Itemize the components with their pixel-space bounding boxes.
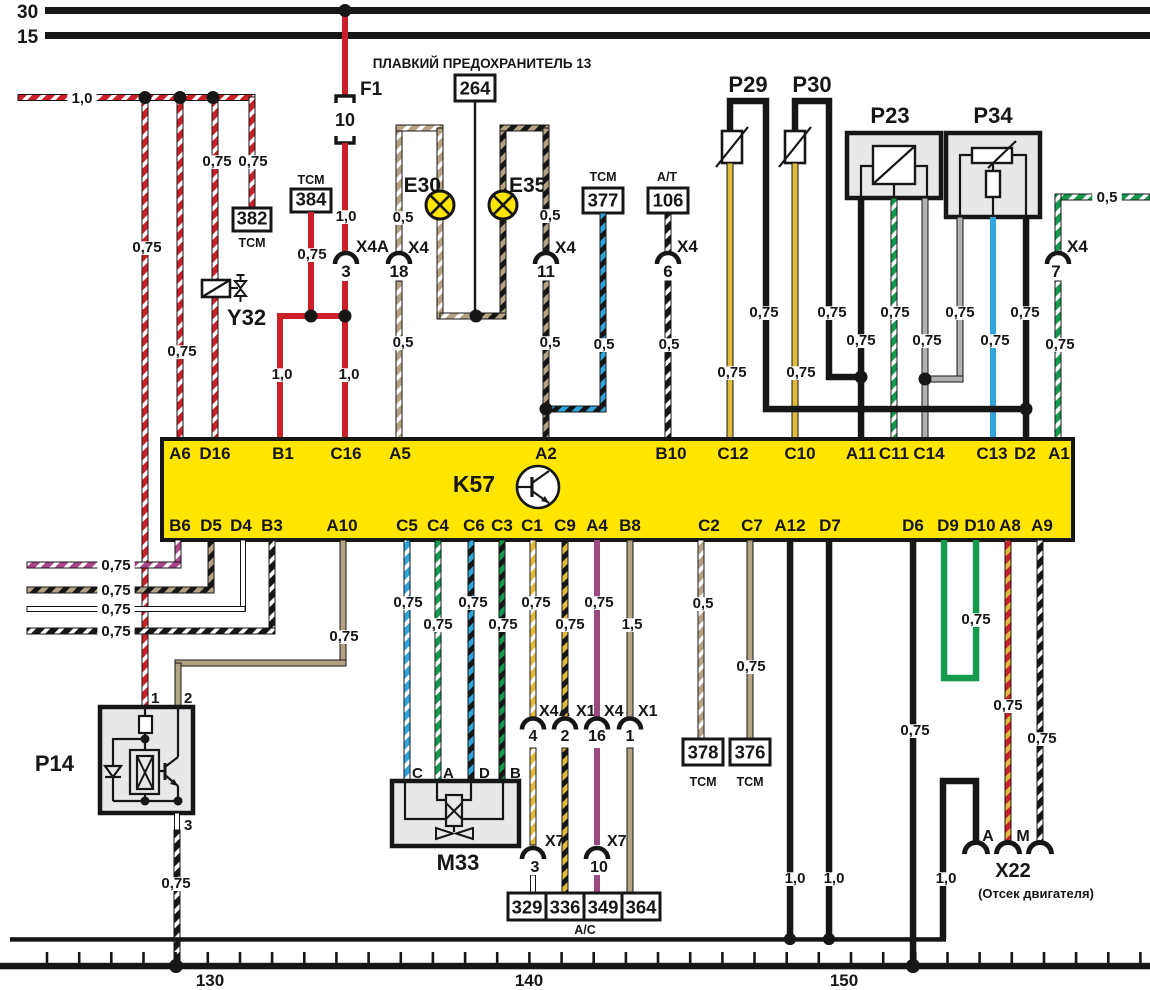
- svg-text:0,75: 0,75: [488, 616, 517, 633]
- svg-text:6: 6: [663, 262, 672, 281]
- svg-text:A6: A6: [169, 444, 191, 463]
- svg-text:3: 3: [531, 859, 540, 876]
- svg-text:A2: A2: [535, 444, 557, 463]
- svg-text:TCM: TCM: [736, 775, 763, 789]
- svg-text:130: 130: [196, 971, 224, 990]
- svg-text:1: 1: [626, 728, 635, 745]
- svg-text:X4: X4: [604, 703, 624, 720]
- svg-text:0,75: 0,75: [945, 304, 974, 321]
- svg-text:0,5: 0,5: [540, 207, 561, 224]
- svg-text:P14: P14: [35, 751, 75, 776]
- svg-text:3: 3: [341, 262, 350, 281]
- svg-text:7: 7: [1051, 262, 1060, 281]
- svg-text:Y32: Y32: [227, 305, 266, 330]
- svg-text:382: 382: [237, 208, 268, 229]
- svg-text:D10: D10: [964, 516, 995, 535]
- svg-text:0,75: 0,75: [846, 332, 875, 349]
- svg-text:D: D: [479, 765, 490, 782]
- svg-text:0,75: 0,75: [458, 594, 487, 611]
- svg-text:A: A: [443, 765, 454, 782]
- svg-text:A4: A4: [586, 516, 608, 535]
- svg-text:0,5: 0,5: [1097, 189, 1118, 206]
- svg-text:M33: M33: [437, 850, 480, 875]
- svg-text:C: C: [412, 765, 423, 782]
- svg-text:0,75: 0,75: [1045, 336, 1074, 353]
- svg-text:0,5: 0,5: [393, 334, 414, 351]
- svg-text:K57: K57: [453, 471, 495, 497]
- svg-text:0,75: 0,75: [749, 304, 778, 321]
- svg-text:TCM: TCM: [297, 173, 324, 187]
- svg-text:140: 140: [515, 971, 543, 990]
- svg-text:F1: F1: [360, 79, 383, 100]
- svg-text:0,75: 0,75: [736, 658, 765, 675]
- svg-text:A/C: A/C: [574, 923, 596, 937]
- svg-text:B1: B1: [272, 444, 294, 463]
- svg-text:0,75: 0,75: [584, 594, 613, 611]
- svg-text:10: 10: [590, 859, 608, 876]
- svg-text:364: 364: [626, 897, 658, 918]
- svg-text:C2: C2: [698, 516, 720, 535]
- svg-text:X4: X4: [1067, 237, 1088, 256]
- svg-text:B: B: [510, 765, 521, 782]
- svg-text:4: 4: [529, 728, 538, 745]
- svg-text:B6: B6: [169, 516, 191, 535]
- svg-text:A/T: A/T: [657, 170, 678, 184]
- svg-text:C1: C1: [521, 516, 543, 535]
- svg-text:C13: C13: [976, 444, 1007, 463]
- svg-text:329: 329: [512, 897, 543, 918]
- svg-text:16: 16: [588, 728, 606, 745]
- svg-text:(Отсек двигателя): (Отсек двигателя): [978, 886, 1094, 901]
- svg-text:D6: D6: [902, 516, 924, 535]
- svg-text:X4: X4: [677, 237, 698, 256]
- svg-text:0,75: 0,75: [132, 239, 161, 256]
- svg-text:15: 15: [17, 27, 39, 48]
- svg-text:D2: D2: [1014, 444, 1036, 463]
- svg-text:C4: C4: [427, 516, 449, 535]
- svg-text:0,75: 0,75: [101, 582, 130, 599]
- svg-text:384: 384: [296, 189, 328, 210]
- svg-text:A12: A12: [774, 516, 805, 535]
- svg-text:0,75: 0,75: [717, 364, 746, 381]
- svg-text:1: 1: [151, 690, 159, 707]
- svg-text:376: 376: [735, 742, 766, 763]
- svg-text:X4: X4: [555, 238, 576, 257]
- svg-text:A11: A11: [846, 444, 876, 463]
- svg-text:150: 150: [830, 971, 858, 990]
- svg-text:D7: D7: [819, 516, 841, 535]
- svg-text:264: 264: [460, 78, 492, 99]
- svg-text:0,75: 0,75: [786, 364, 815, 381]
- svg-text:C9: C9: [554, 516, 576, 535]
- svg-text:X4: X4: [408, 238, 429, 257]
- svg-text:0,75: 0,75: [912, 332, 941, 349]
- svg-text:0,75: 0,75: [101, 623, 130, 640]
- svg-text:A10: A10: [326, 516, 357, 535]
- svg-text:1,0: 1,0: [336, 208, 357, 225]
- svg-text:0,75: 0,75: [238, 153, 267, 170]
- svg-text:0,75: 0,75: [393, 594, 422, 611]
- svg-text:C11: C11: [879, 444, 909, 463]
- svg-text:M: M: [1016, 828, 1029, 845]
- svg-text:0,75: 0,75: [880, 304, 909, 321]
- svg-text:C5: C5: [396, 516, 418, 535]
- svg-text:0,75: 0,75: [817, 304, 846, 321]
- svg-text:E30: E30: [404, 174, 441, 197]
- svg-text:X7: X7: [607, 833, 627, 850]
- svg-text:A5: A5: [389, 444, 411, 463]
- svg-text:TCM: TCM: [238, 236, 265, 250]
- svg-text:C14: C14: [913, 444, 945, 463]
- svg-text:1,0: 1,0: [272, 366, 293, 383]
- svg-text:11: 11: [537, 262, 555, 281]
- svg-text:B10: B10: [655, 444, 686, 463]
- svg-text:0,75: 0,75: [423, 616, 452, 633]
- svg-text:0,75: 0,75: [202, 153, 231, 170]
- svg-text:0,5: 0,5: [393, 209, 414, 226]
- svg-text:X4A: X4A: [356, 237, 389, 256]
- svg-text:ПЛАВКИЙ ПРЕДОХРАНИТЕЛЬ 13: ПЛАВКИЙ ПРЕДОХРАНИТЕЛЬ 13: [373, 56, 592, 71]
- svg-text:C7: C7: [741, 516, 763, 535]
- svg-text:1,0: 1,0: [339, 366, 360, 383]
- svg-text:P34: P34: [973, 103, 1013, 128]
- svg-text:377: 377: [588, 190, 619, 211]
- svg-text:0,5: 0,5: [659, 336, 680, 353]
- svg-text:P30: P30: [792, 72, 831, 97]
- svg-text:378: 378: [688, 742, 719, 763]
- svg-text:0,75: 0,75: [101, 557, 130, 574]
- svg-text:18: 18: [390, 262, 409, 281]
- svg-text:3: 3: [184, 817, 192, 834]
- svg-text:1,5: 1,5: [622, 616, 643, 633]
- svg-text:A1: A1: [1048, 444, 1070, 463]
- svg-text:X1: X1: [638, 703, 658, 720]
- svg-text:0,75: 0,75: [961, 611, 990, 628]
- svg-text:2: 2: [561, 728, 570, 745]
- svg-text:X22: X22: [995, 860, 1031, 882]
- svg-text:0,5: 0,5: [693, 595, 714, 612]
- svg-text:0,75: 0,75: [329, 628, 358, 645]
- svg-text:E35: E35: [509, 174, 547, 197]
- svg-text:TCM: TCM: [689, 775, 716, 789]
- svg-text:0,75: 0,75: [980, 332, 1009, 349]
- svg-text:A8: A8: [999, 516, 1021, 535]
- svg-text:349: 349: [588, 897, 619, 918]
- svg-text:0,75: 0,75: [161, 875, 190, 892]
- svg-text:106: 106: [653, 190, 684, 211]
- svg-text:TCM: TCM: [589, 170, 616, 184]
- svg-text:336: 336: [550, 897, 581, 918]
- svg-text:B3: B3: [261, 516, 283, 535]
- svg-text:0,5: 0,5: [540, 334, 561, 351]
- svg-text:B8: B8: [619, 516, 641, 535]
- svg-text:C12: C12: [717, 444, 748, 463]
- svg-text:D9: D9: [937, 516, 959, 535]
- svg-text:30: 30: [17, 2, 38, 23]
- svg-text:0,75: 0,75: [900, 722, 929, 739]
- svg-text:0,75: 0,75: [167, 343, 196, 360]
- svg-text:0,75: 0,75: [1010, 304, 1039, 321]
- svg-text:D16: D16: [199, 444, 230, 463]
- svg-text:D4: D4: [230, 516, 252, 535]
- svg-text:0,75: 0,75: [555, 616, 584, 633]
- svg-text:0,75: 0,75: [993, 697, 1022, 714]
- svg-text:0,75: 0,75: [521, 594, 550, 611]
- svg-text:10: 10: [335, 110, 355, 130]
- svg-text:A9: A9: [1031, 516, 1053, 535]
- svg-text:0,75: 0,75: [101, 601, 130, 618]
- svg-text:C10: C10: [784, 444, 815, 463]
- svg-text:1,0: 1,0: [785, 870, 806, 887]
- svg-text:A: A: [982, 828, 994, 845]
- svg-text:0,75: 0,75: [1027, 730, 1056, 747]
- svg-text:0,75: 0,75: [297, 246, 326, 263]
- svg-text:1,0: 1,0: [824, 870, 845, 887]
- svg-text:C3: C3: [491, 516, 513, 535]
- svg-text:1,0: 1,0: [72, 90, 93, 107]
- svg-text:C16: C16: [330, 444, 361, 463]
- svg-text:C6: C6: [463, 516, 485, 535]
- svg-text:2: 2: [184, 690, 192, 707]
- svg-text:D5: D5: [200, 516, 222, 535]
- svg-text:P23: P23: [870, 103, 909, 128]
- svg-text:P29: P29: [728, 72, 767, 97]
- svg-text:1,0: 1,0: [936, 870, 957, 887]
- svg-text:0,5: 0,5: [594, 336, 615, 353]
